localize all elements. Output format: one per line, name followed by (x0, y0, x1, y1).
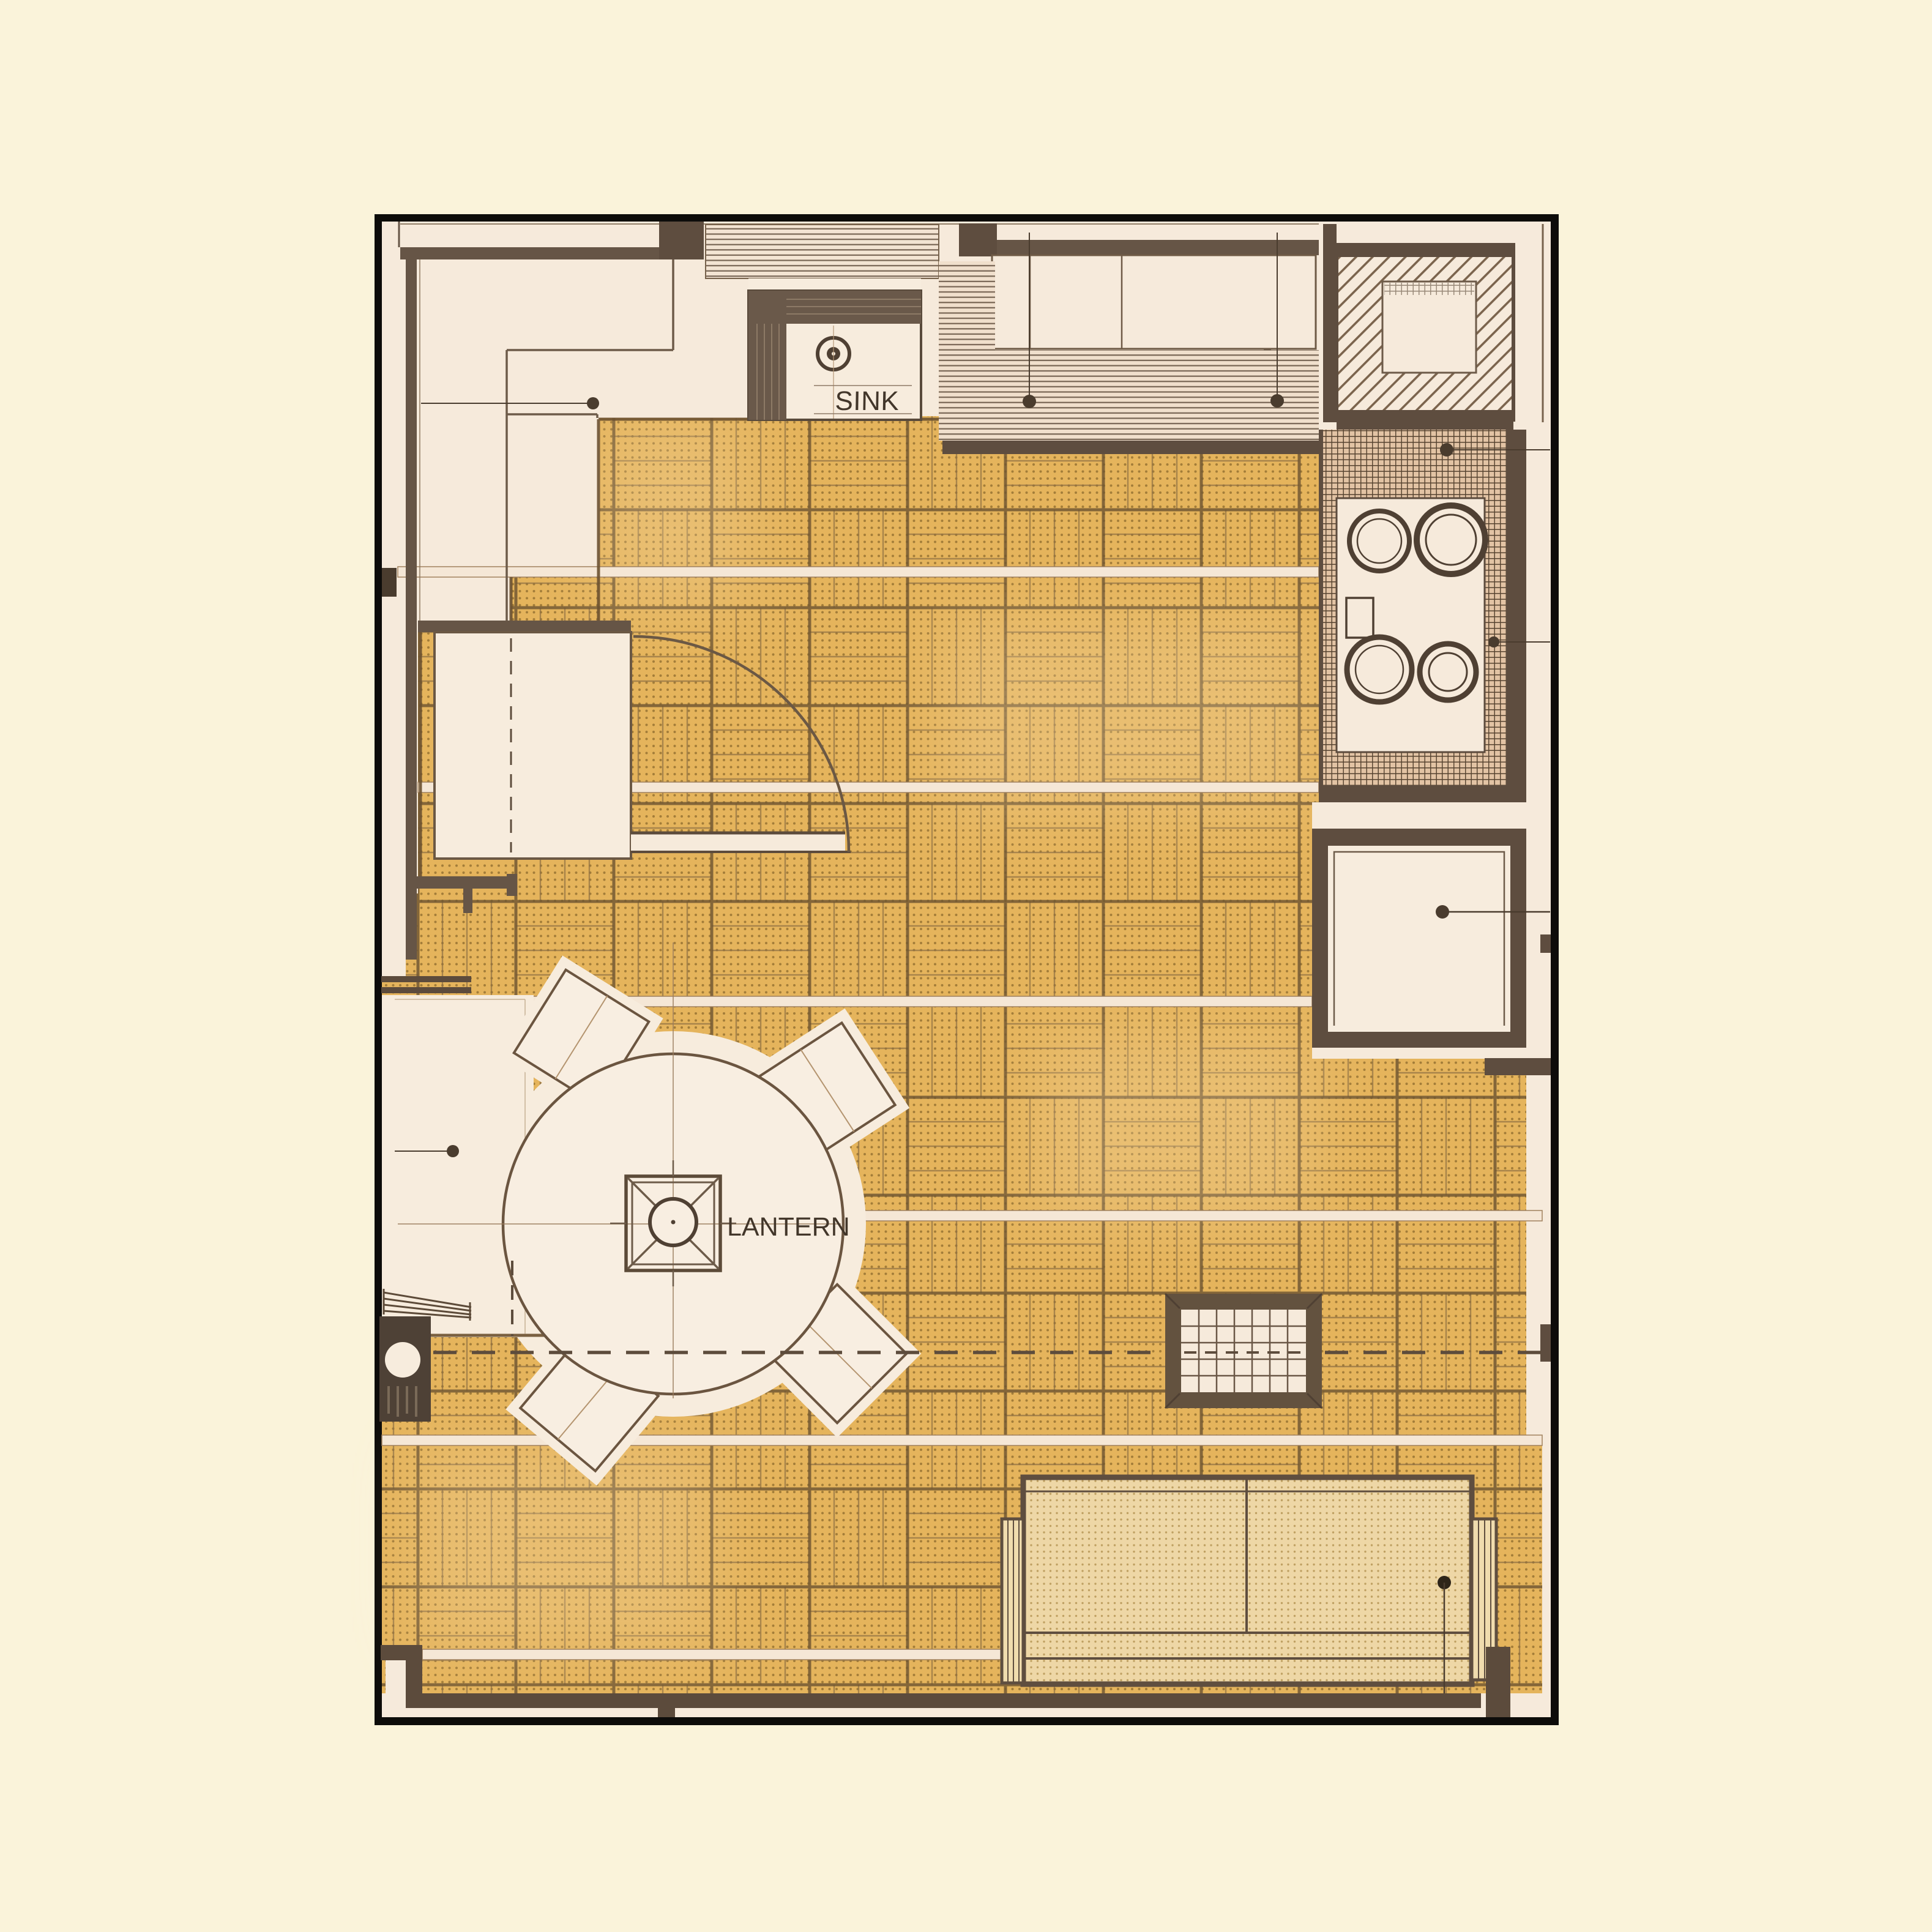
svg-text:LANTERN: LANTERN (727, 1212, 850, 1242)
svg-text:SINK: SINK (835, 386, 900, 416)
